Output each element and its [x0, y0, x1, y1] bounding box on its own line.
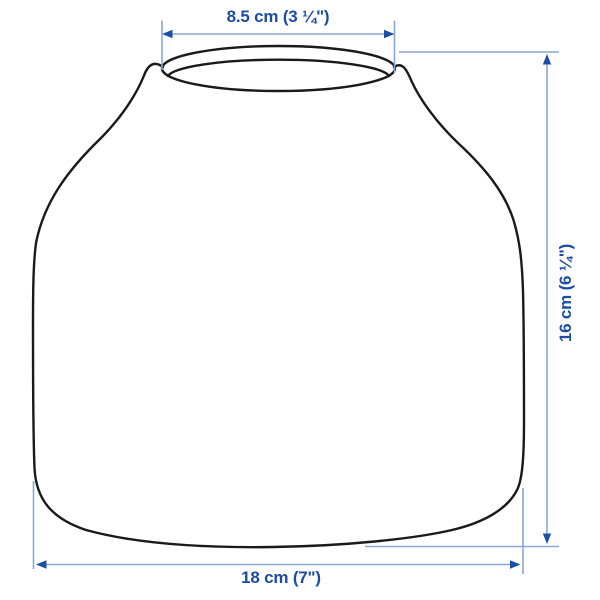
vase-body-outline: [33, 64, 524, 547]
dimension-diagram: 8.5 cm (3 ¼") 16 cm (6 ¼") 18 cm (7"): [0, 0, 600, 600]
opening-width-label: 8.5 cm (3 ¼"): [227, 7, 330, 27]
base-width-label: 18 cm (7"): [241, 568, 321, 588]
height-arrowhead-bottom: [543, 534, 551, 545]
height-arrowhead-top: [543, 54, 551, 65]
height-label: 16 cm (6 ¼"): [556, 244, 576, 342]
base-arrowhead-left: [36, 560, 47, 568]
vase-outline: [33, 46, 524, 547]
opening-arrowhead-right: [384, 30, 395, 38]
base-width-dimension: [34, 481, 524, 574]
vase-mouth-inner-rim: [168, 60, 389, 76]
vase-mouth-outer-rim: [162, 46, 395, 91]
height-dimension: [365, 52, 559, 547]
diagram-canvas: [0, 0, 600, 600]
opening-arrowhead-left: [162, 30, 173, 38]
base-arrowhead-right: [510, 560, 521, 568]
